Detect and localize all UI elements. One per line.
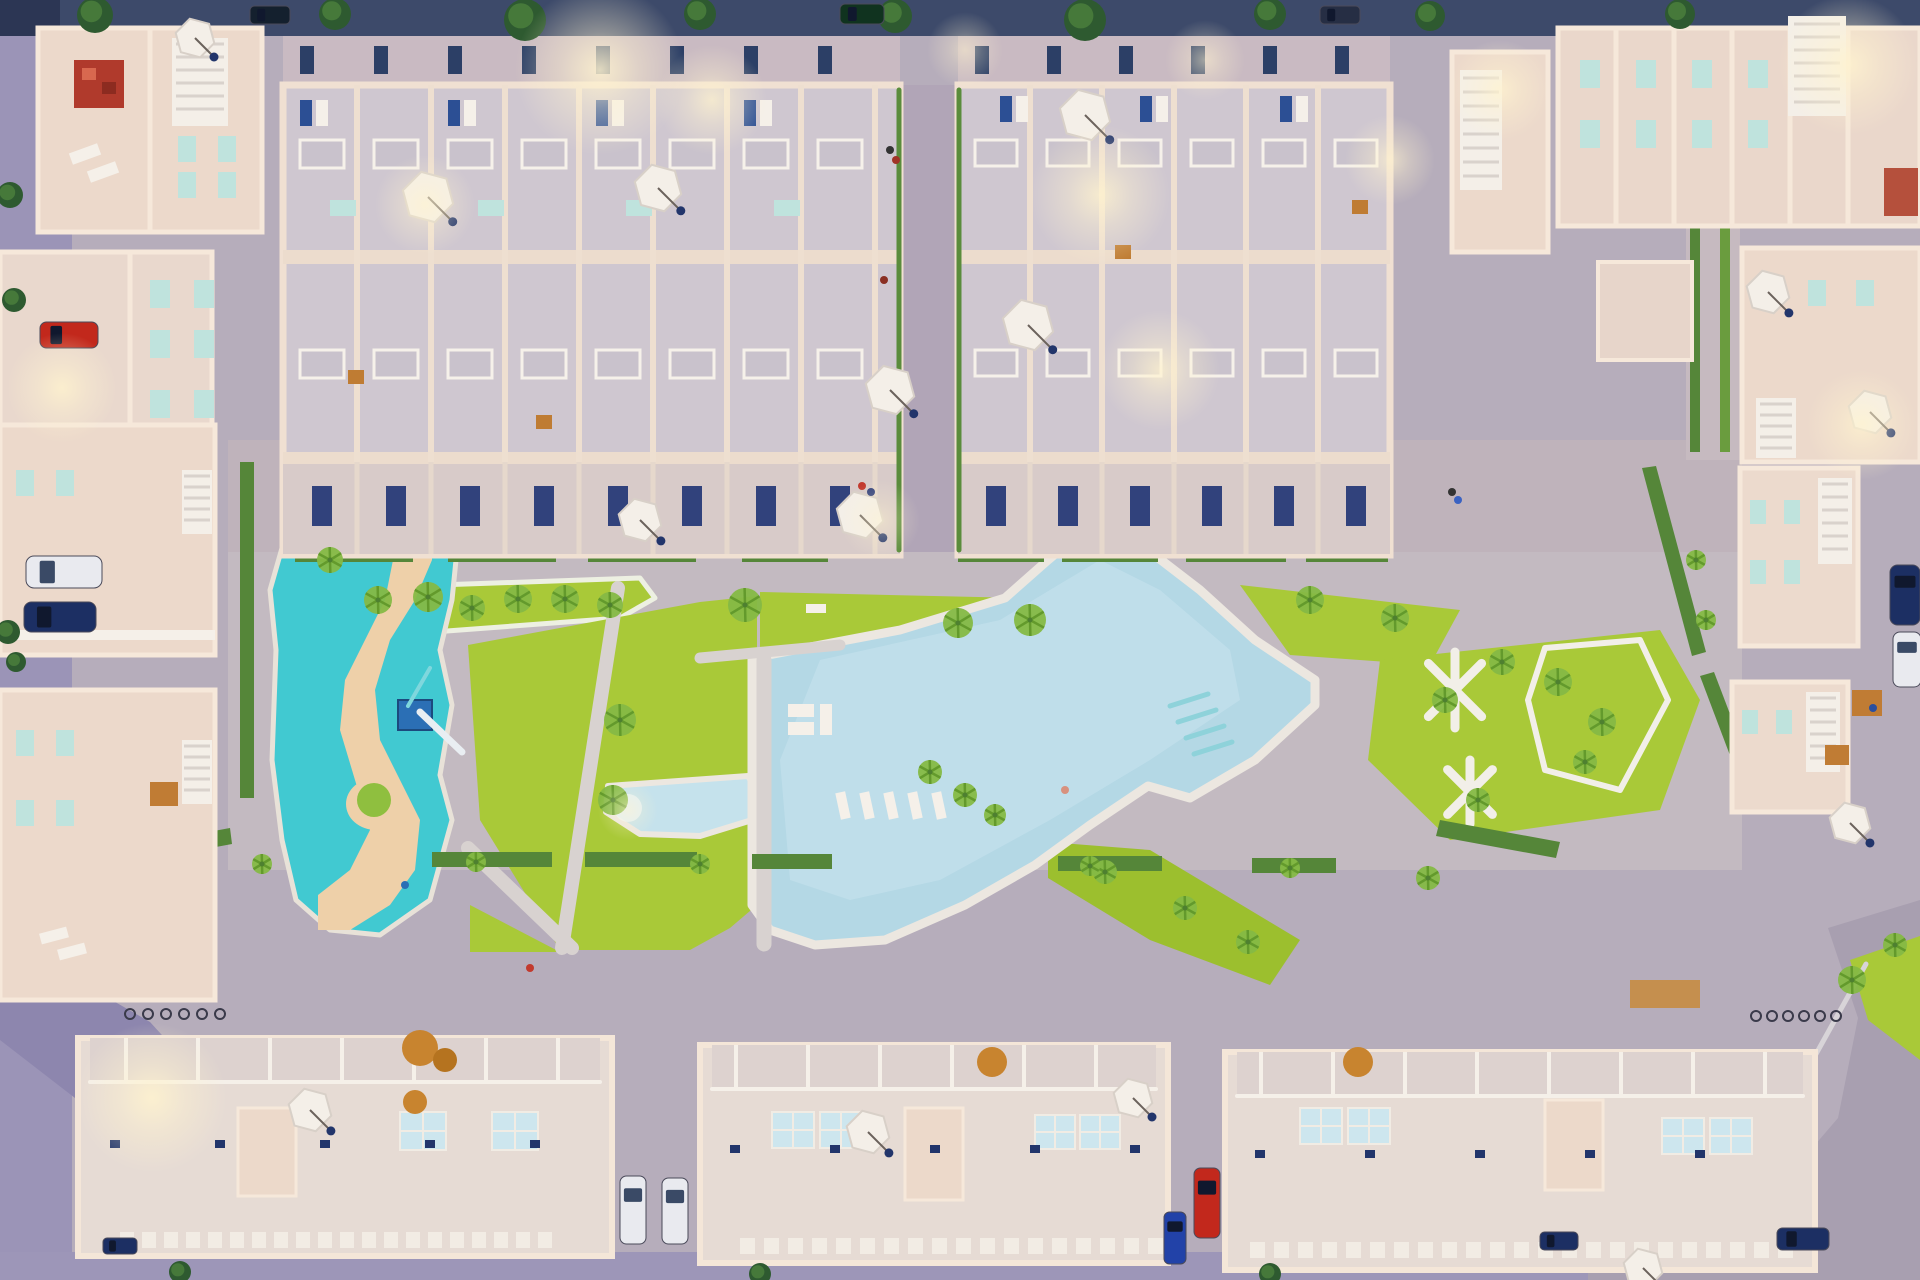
light-glow [927,12,1003,88]
block2-colonnade [1004,1238,1019,1254]
parasol-pole-base [909,409,918,418]
block2-doors [1030,1145,1040,1153]
aerial-residential-render [0,0,1920,1280]
rowA-roof-hatch [818,140,862,168]
car-navy-windshield [37,607,51,628]
swimmer [1061,786,1069,794]
parasol-pole-base [1048,345,1057,354]
parasol-pole-base [1784,308,1793,317]
terrace-table [348,370,364,384]
street-tree-crown [1668,2,1686,20]
rowA-glass-doors [756,486,776,526]
palm-trunk [1600,720,1605,725]
block3-colonnade [1322,1242,1337,1258]
car-blue [1164,1212,1186,1264]
block1-doors [215,1140,225,1148]
bw4-stair [182,740,212,804]
street-tree-crown [81,1,103,23]
rowB-loungers-white [1296,96,1308,122]
bne2-windows [1580,120,1600,148]
rowA-roof-hatch-south [374,350,418,378]
hedge-vertical-west [240,462,254,798]
pool-step [788,722,814,735]
pool-step [788,704,814,717]
car-white-windshield [624,1188,642,1202]
block1-colonnade [318,1232,332,1248]
palm-trunk [618,718,623,723]
palm-trunk [376,598,381,603]
palm-trunk [1556,680,1561,685]
bne2-windows [1636,120,1656,148]
rowA-facade-windows [818,46,832,74]
bw4-windows [16,800,34,826]
block1-colonnade [472,1232,486,1248]
terrace-table [1352,200,1368,214]
villa-windows [178,136,196,162]
palm-trunk [1308,598,1313,603]
block1-colonnade [186,1232,200,1248]
palm-trunk [963,793,968,798]
block2-colonnade [1100,1238,1115,1254]
block3-colonnade [1442,1242,1457,1258]
be6-windows [1776,710,1792,734]
rowA-south-facade [283,462,900,554]
block2-colonnade [740,1238,755,1254]
light-glow [1165,20,1245,100]
block1-colonnade [494,1232,508,1248]
block2-colonnade [932,1238,947,1254]
car-navy [24,602,96,632]
splash-park [270,518,462,935]
person [886,146,894,154]
rowA-loungers-navy [448,100,460,126]
street-tree-crown [687,1,706,20]
car-navy [1777,1228,1829,1250]
rowA-glass-doors [386,486,406,526]
car-white [1893,632,1920,687]
block3-colonnade [1394,1242,1409,1258]
car-red-windshield [1198,1181,1216,1195]
rowB-glass-doors [1058,486,1078,526]
street-tree-crown [1257,1,1276,20]
block2-colonnade [1124,1238,1139,1254]
palm-trunk [608,603,613,608]
car-dark [840,4,884,24]
block3-colonnade [1346,1242,1361,1258]
bw2-windows [150,330,170,358]
bne4-windows [1856,280,1874,306]
car-white-windshield [40,561,55,583]
rowB-loungers-navy [1280,96,1292,122]
block2-doors [830,1145,840,1153]
block1-doors [425,1140,435,1148]
parasol-pole-base [884,1148,893,1157]
villa-red-terrace [74,60,124,108]
rowA-roof-hatch [300,140,344,168]
block3-colonnade [1586,1242,1601,1258]
car-navy-windshield [1786,1231,1796,1246]
bne2-windows [1692,60,1712,88]
bw3-windows [16,470,34,496]
bne2-windows [1748,60,1768,88]
rowB-roof-hatch-south [1263,350,1305,376]
block3-colonnade [1274,1242,1289,1258]
street-tree-crown [1418,4,1436,22]
light-glow [657,45,767,155]
block3-colonnade [1610,1242,1625,1258]
street-tree-crown [1068,3,1093,28]
car-white-windshield [1897,642,1917,653]
block2-colonnade [1052,1238,1067,1254]
rowB-facade-windows [1335,46,1349,74]
rowB-facade-windows [1263,46,1277,74]
bw4-windows [16,730,34,756]
rowA-roof-hatch-south [744,350,788,378]
block3-colonnade [1250,1242,1265,1258]
block1-colonnade [164,1232,178,1248]
rowA-skylights [330,200,356,216]
light-glow [77,1023,227,1173]
block1-colonnade [340,1232,354,1248]
block3-colonnade [1514,1242,1529,1258]
rowA-glass-doors [534,486,554,526]
block3-lift-tower [1545,1100,1603,1190]
block2-colonnade [1028,1238,1043,1254]
site-plan-canvas [0,0,1920,1280]
rowB-roof-hatch [975,140,1017,166]
villa-windows [218,136,236,162]
rowA-roof-hatch-south [300,350,344,378]
car-navy [103,1238,137,1254]
rowB-glass-doors [1202,486,1222,526]
rowB-roof-hatch [1191,140,1233,166]
bne2-windows [1580,60,1600,88]
rowB-roof-hatch [1263,140,1305,166]
roadside-tree-crown [4,290,18,304]
rowA-facade-windows [374,46,388,74]
palm-trunk [328,558,333,563]
child [401,881,409,889]
rowA-glass-doors [460,486,480,526]
bw3-windows [56,470,74,496]
lawn-bench [806,604,826,613]
rowB-glass-doors [1130,486,1150,526]
hedge-tree-trunk [260,862,265,867]
block1-colonnade [296,1232,310,1248]
car-navy-windshield [1547,1235,1555,1248]
block2-lift-tower [905,1108,963,1200]
light-glow [7,333,117,443]
block3-doors [1695,1150,1705,1158]
person [1869,704,1877,712]
bne2-red-terrace [1884,168,1918,216]
parasol-pole-base [326,1126,335,1135]
bne2-windows [1692,120,1712,148]
rowA-skylights [478,200,504,216]
block2-doors [730,1145,740,1153]
be5-windows [1750,560,1766,584]
car-white [662,1178,688,1244]
palm-trunk [1850,978,1855,983]
palm-trunk [1103,870,1108,875]
rowA-facade-windows [448,46,462,74]
block2-colonnade [980,1238,995,1254]
rowA-roof-hatch-south [448,350,492,378]
block1-colonnade [450,1232,464,1248]
rowA-roof-hatch-south [818,350,862,378]
hedge-south [585,852,697,867]
roadside-tree-crown [8,654,20,666]
block3-doors [1475,1150,1485,1158]
rowA-roof-hatch-south [596,350,640,378]
parasol-pole-base [676,206,685,215]
palm-trunk [956,621,961,626]
bw2-windows [194,280,214,308]
palm-trunk [1443,698,1448,703]
block3-orange-tree [1343,1047,1373,1077]
median-bush-trunk [1704,618,1709,623]
palm-trunk [563,597,568,602]
palm-trunk [743,603,748,608]
street-tree-crown [751,1265,764,1278]
car-dark [250,6,290,24]
pool-step [820,704,832,735]
block3-doors [1255,1150,1265,1158]
street-tree-crown [171,1263,184,1276]
block1-colonnade [230,1232,244,1248]
palm-trunk [1426,876,1431,881]
car-blue-windshield [1167,1221,1182,1231]
villa-red-chair [82,68,96,80]
block1-doors [530,1140,540,1148]
palm-trunk [1500,660,1505,665]
palm-trunk [1246,940,1251,945]
block1-orange-tree [403,1090,427,1114]
rowB-facade-windows [1047,46,1061,74]
block3-colonnade [1754,1242,1769,1258]
rowA-loungers-white [316,100,328,126]
palm-trunk [1393,616,1398,621]
rowB-facade-windows [1119,46,1133,74]
block3-colonnade [1418,1242,1433,1258]
car-navy [1890,565,1920,625]
mews-path [902,85,956,552]
block1-colonnade [362,1232,376,1248]
block3-colonnade [1682,1242,1697,1258]
parasol-pole-base [1148,1113,1157,1122]
block1-colonnade [406,1232,420,1248]
block1-doors [320,1140,330,1148]
block2-colonnade [1148,1238,1163,1254]
person [880,276,888,284]
palm-trunk [426,595,431,600]
bne2-windows [1636,60,1656,88]
rowA-loungers-navy [300,100,312,126]
palm-trunk [1476,798,1481,803]
rowA-roof-hatch-south [522,350,566,378]
block2-colonnade [788,1238,803,1254]
block3-doors [1365,1150,1375,1158]
palm-trunk [1893,943,1898,948]
rowA-party-wall [283,250,900,264]
block1-colonnade [538,1232,552,1248]
palm-trunk [993,813,998,818]
light-glow [1100,310,1220,430]
person [892,156,900,164]
building-ne-3 [1598,262,1692,360]
block2-colonnade [812,1238,827,1254]
hedge-tree-trunk [1288,866,1293,871]
block1-colonnade [252,1232,266,1248]
person [1454,496,1462,504]
bw2-windows [194,330,214,358]
bne2-windows [1748,120,1768,148]
block3-colonnade [1658,1242,1673,1258]
block2-orange-tree [977,1047,1007,1077]
parasol-pole-base [656,536,665,545]
bw2-windows [150,280,170,308]
hedge-tree-trunk [1088,864,1093,869]
block1-colonnade [274,1232,288,1248]
block1-colonnade [142,1232,156,1248]
rowA-roof-hatch-south [670,350,714,378]
rowB-loungers-navy [1140,96,1152,122]
block2-colonnade [1076,1238,1091,1254]
rowB-loungers-white [1016,96,1028,122]
block1-orange-tree [433,1048,457,1072]
palm-trunk [1583,760,1588,765]
car-red [1194,1168,1220,1238]
car-dark-windshield [1327,9,1335,22]
light-glow [840,480,920,560]
median-bush-trunk [1694,558,1699,563]
block3-colonnade [1298,1242,1313,1258]
block2-colonnade [908,1238,923,1254]
car-navy-windshield [1895,576,1916,588]
light-glow [1030,125,1170,265]
light-glow [1778,0,1918,135]
block1-colonnade [208,1232,222,1248]
block3-terrace-band [1237,1052,1803,1096]
block3-colonnade [1730,1242,1745,1258]
car-navy-windshield [109,1240,116,1251]
block2-doors [930,1145,940,1153]
parasol-pole-base [210,53,219,62]
bw3-stair [182,470,212,534]
block1-lift-tower [238,1108,296,1196]
light-glow [1807,370,1917,480]
be5-windows [1784,560,1800,584]
rowB-glass-doors [1346,486,1366,526]
bw2-windows [194,390,214,418]
hedge-south [432,852,552,867]
be5-stair [1818,478,1852,564]
car-white [620,1176,646,1244]
roadside-tree-crown [0,185,15,201]
block2-terrace-band [712,1045,1156,1089]
block3-colonnade [1706,1242,1721,1258]
light-glow [1450,40,1550,140]
bw4-table [150,782,178,806]
street-table [1825,745,1849,765]
person [1448,488,1456,496]
pool-light [598,780,658,840]
villa-windows [178,172,196,198]
car-white [26,556,102,588]
be6-windows [1742,710,1758,734]
rowA-skylights [774,200,800,216]
rowB-roof-hatch-south [1335,350,1377,376]
rowB-loungers-white [1156,96,1168,122]
palm-trunk [516,597,521,602]
rowA-glass-doors [312,486,332,526]
block2-colonnade [860,1238,875,1254]
rowA-loungers-white [464,100,476,126]
be5-windows [1784,500,1800,524]
block3-pergola [1630,980,1700,1008]
hedge-tree-trunk [698,862,703,867]
block1-colonnade [384,1232,398,1248]
car-dark-windshield [257,9,265,22]
terrace-table [536,415,552,429]
villa-red-chair [102,82,116,94]
splash-island-green [357,783,391,817]
car-navy [1540,1232,1578,1250]
rowA-south-wall [283,452,900,464]
block3-doors [1585,1150,1595,1158]
block1-colonnade [428,1232,442,1248]
villa-windows [218,172,236,198]
light-glow [1345,115,1435,205]
rowA-facade-windows [300,46,314,74]
block2-doors [1130,1145,1140,1153]
street-table [1852,690,1882,716]
rowB-glass-doors [986,486,1006,526]
rowB-loungers-navy [1000,96,1012,122]
block2-colonnade [764,1238,779,1254]
parasol-pole-base [1865,838,1874,847]
rowA-roof-hatch [744,140,788,168]
palm-trunk [928,770,933,775]
hedge-south [752,854,832,869]
bne4-windows [1808,280,1826,306]
rowA-roof-hatch [448,140,492,168]
block3-colonnade [1370,1242,1385,1258]
car-white-windshield [666,1190,684,1203]
bw2-windows [150,390,170,418]
light-glow [375,155,475,255]
block3-colonnade [1490,1242,1505,1258]
palm-trunk [1183,906,1188,911]
bw4-windows [56,730,74,756]
palm-trunk [470,606,475,611]
hedge-tree-trunk [474,860,479,865]
block2-colonnade [836,1238,851,1254]
rowB-glass-doors [1274,486,1294,526]
bw4-windows [56,800,74,826]
street-tree-crown [1261,1265,1274,1278]
car-dark [1320,6,1360,24]
block1-orange-tree [402,1030,438,1066]
car-dark-windshield [848,7,857,21]
palm-trunk [1028,618,1033,623]
block2-colonnade [956,1238,971,1254]
rowB-roof-hatch-south [975,350,1017,376]
block1-colonnade [516,1232,530,1248]
rowA-glass-doors [682,486,702,526]
townhouse-blocks [283,36,1390,555]
street-tree-crown [322,1,341,20]
